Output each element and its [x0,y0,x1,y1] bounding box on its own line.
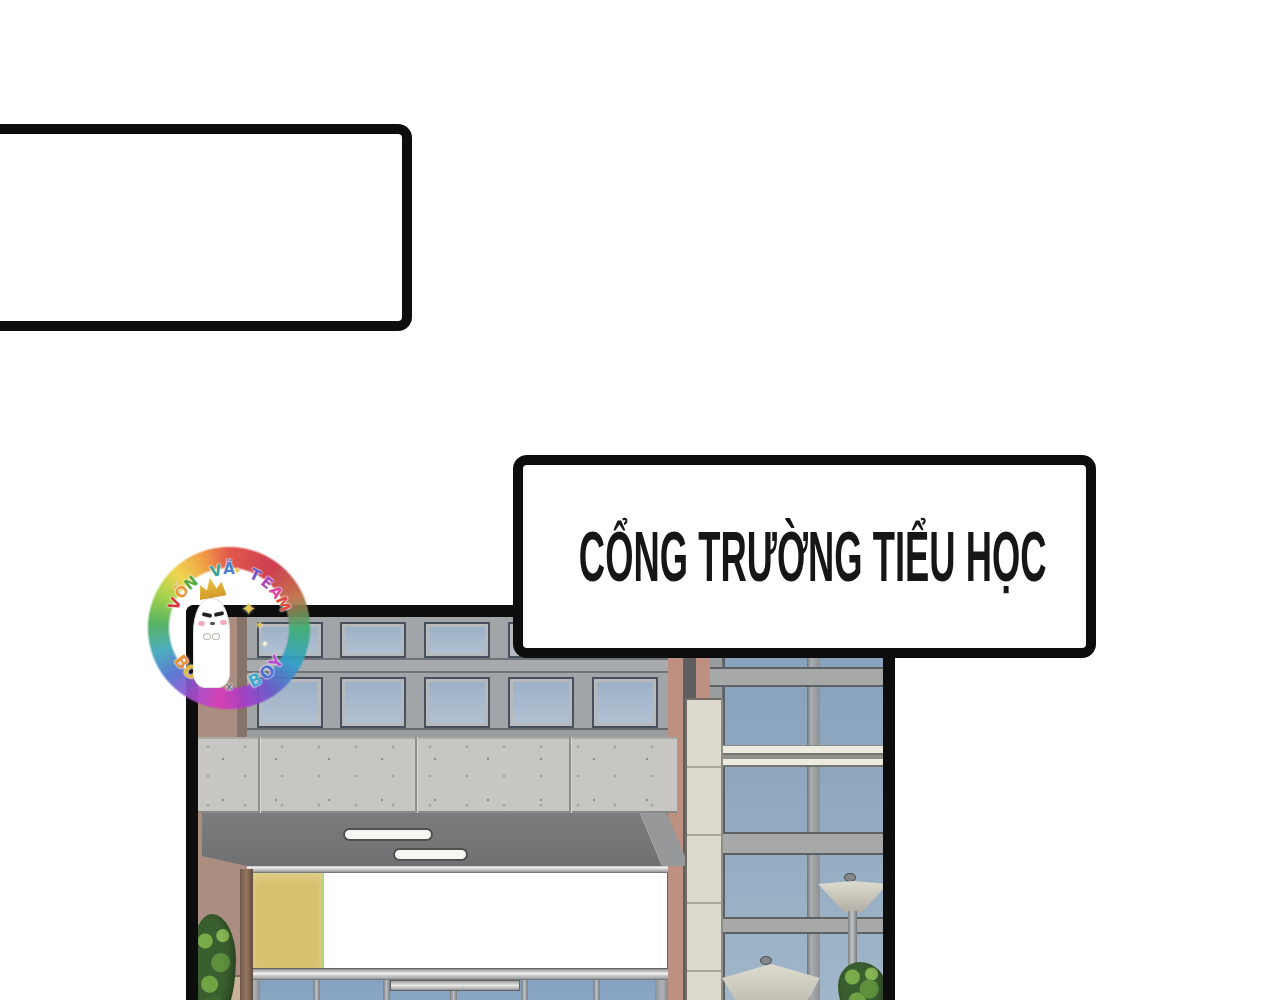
bush-right [838,962,883,1000]
concrete-joint [415,737,417,813]
entrance-divider [383,980,390,1000]
comic-page: CỔNG TRƯỜNG TIỂU HỌC VỐNVÃTEAM BOYxBOY ✦… [0,0,1280,1000]
window-pane [592,677,658,728]
ghost-eye [214,611,225,617]
ghost-cheek [220,620,227,625]
ghost-eye [202,612,213,618]
corner-column [240,869,253,1000]
sparkle-icon: ✦ [261,640,269,649]
awning-light [393,848,468,861]
speech-bubble-caption: CỔNG TRƯỜNG TIỂU HỌC [513,455,1096,658]
entrance-door-header [390,980,520,991]
window-pane [424,677,490,728]
window-pane [508,677,574,728]
caption-text: CỔNG TRƯỜNG TIỂU HỌC [579,517,1047,597]
window-pane [424,622,490,658]
white-spandrel-band [710,745,883,755]
ghost-cheek [198,621,205,626]
white-spandrel-band [710,758,883,767]
concrete-joint [258,737,260,813]
entrance-divider [313,980,320,1000]
facade-color-panels [252,872,667,968]
entrance-frame [655,980,668,1000]
stone-pillar [685,698,723,1000]
window-pane [340,677,406,728]
street-lamp-icon [844,873,856,882]
facade-panel [252,872,322,968]
entrance-glass [247,980,668,1000]
speech-bubble-empty [0,124,412,331]
concrete-band [198,737,677,813]
ghost-hand [212,633,220,640]
glass-horizontal-mullion [710,832,883,855]
sparkle-icon: ✦ [233,566,241,576]
entrance-trim [247,968,668,980]
glass-horizontal-mullion [710,917,883,934]
concrete-joint [569,737,571,813]
street-lamp-icon [760,956,772,965]
entrance-divider [593,980,600,1000]
ghost-mascot-icon [193,598,230,688]
ghost-hand [203,633,211,640]
ghost-mouth [210,622,215,625]
window-pane [340,622,406,658]
entrance-divider [521,980,528,1000]
window-sill [247,728,668,737]
awning-light [343,828,433,841]
sparkle-icon: ✦ [255,620,264,631]
watermark-logo: VỐNVÃTEAM BOYxBOY ✦ ✦ ✦ ✦ [145,544,313,712]
sparkle-icon: ✦ [241,600,256,618]
glass-horizontal-mullion [710,667,883,687]
